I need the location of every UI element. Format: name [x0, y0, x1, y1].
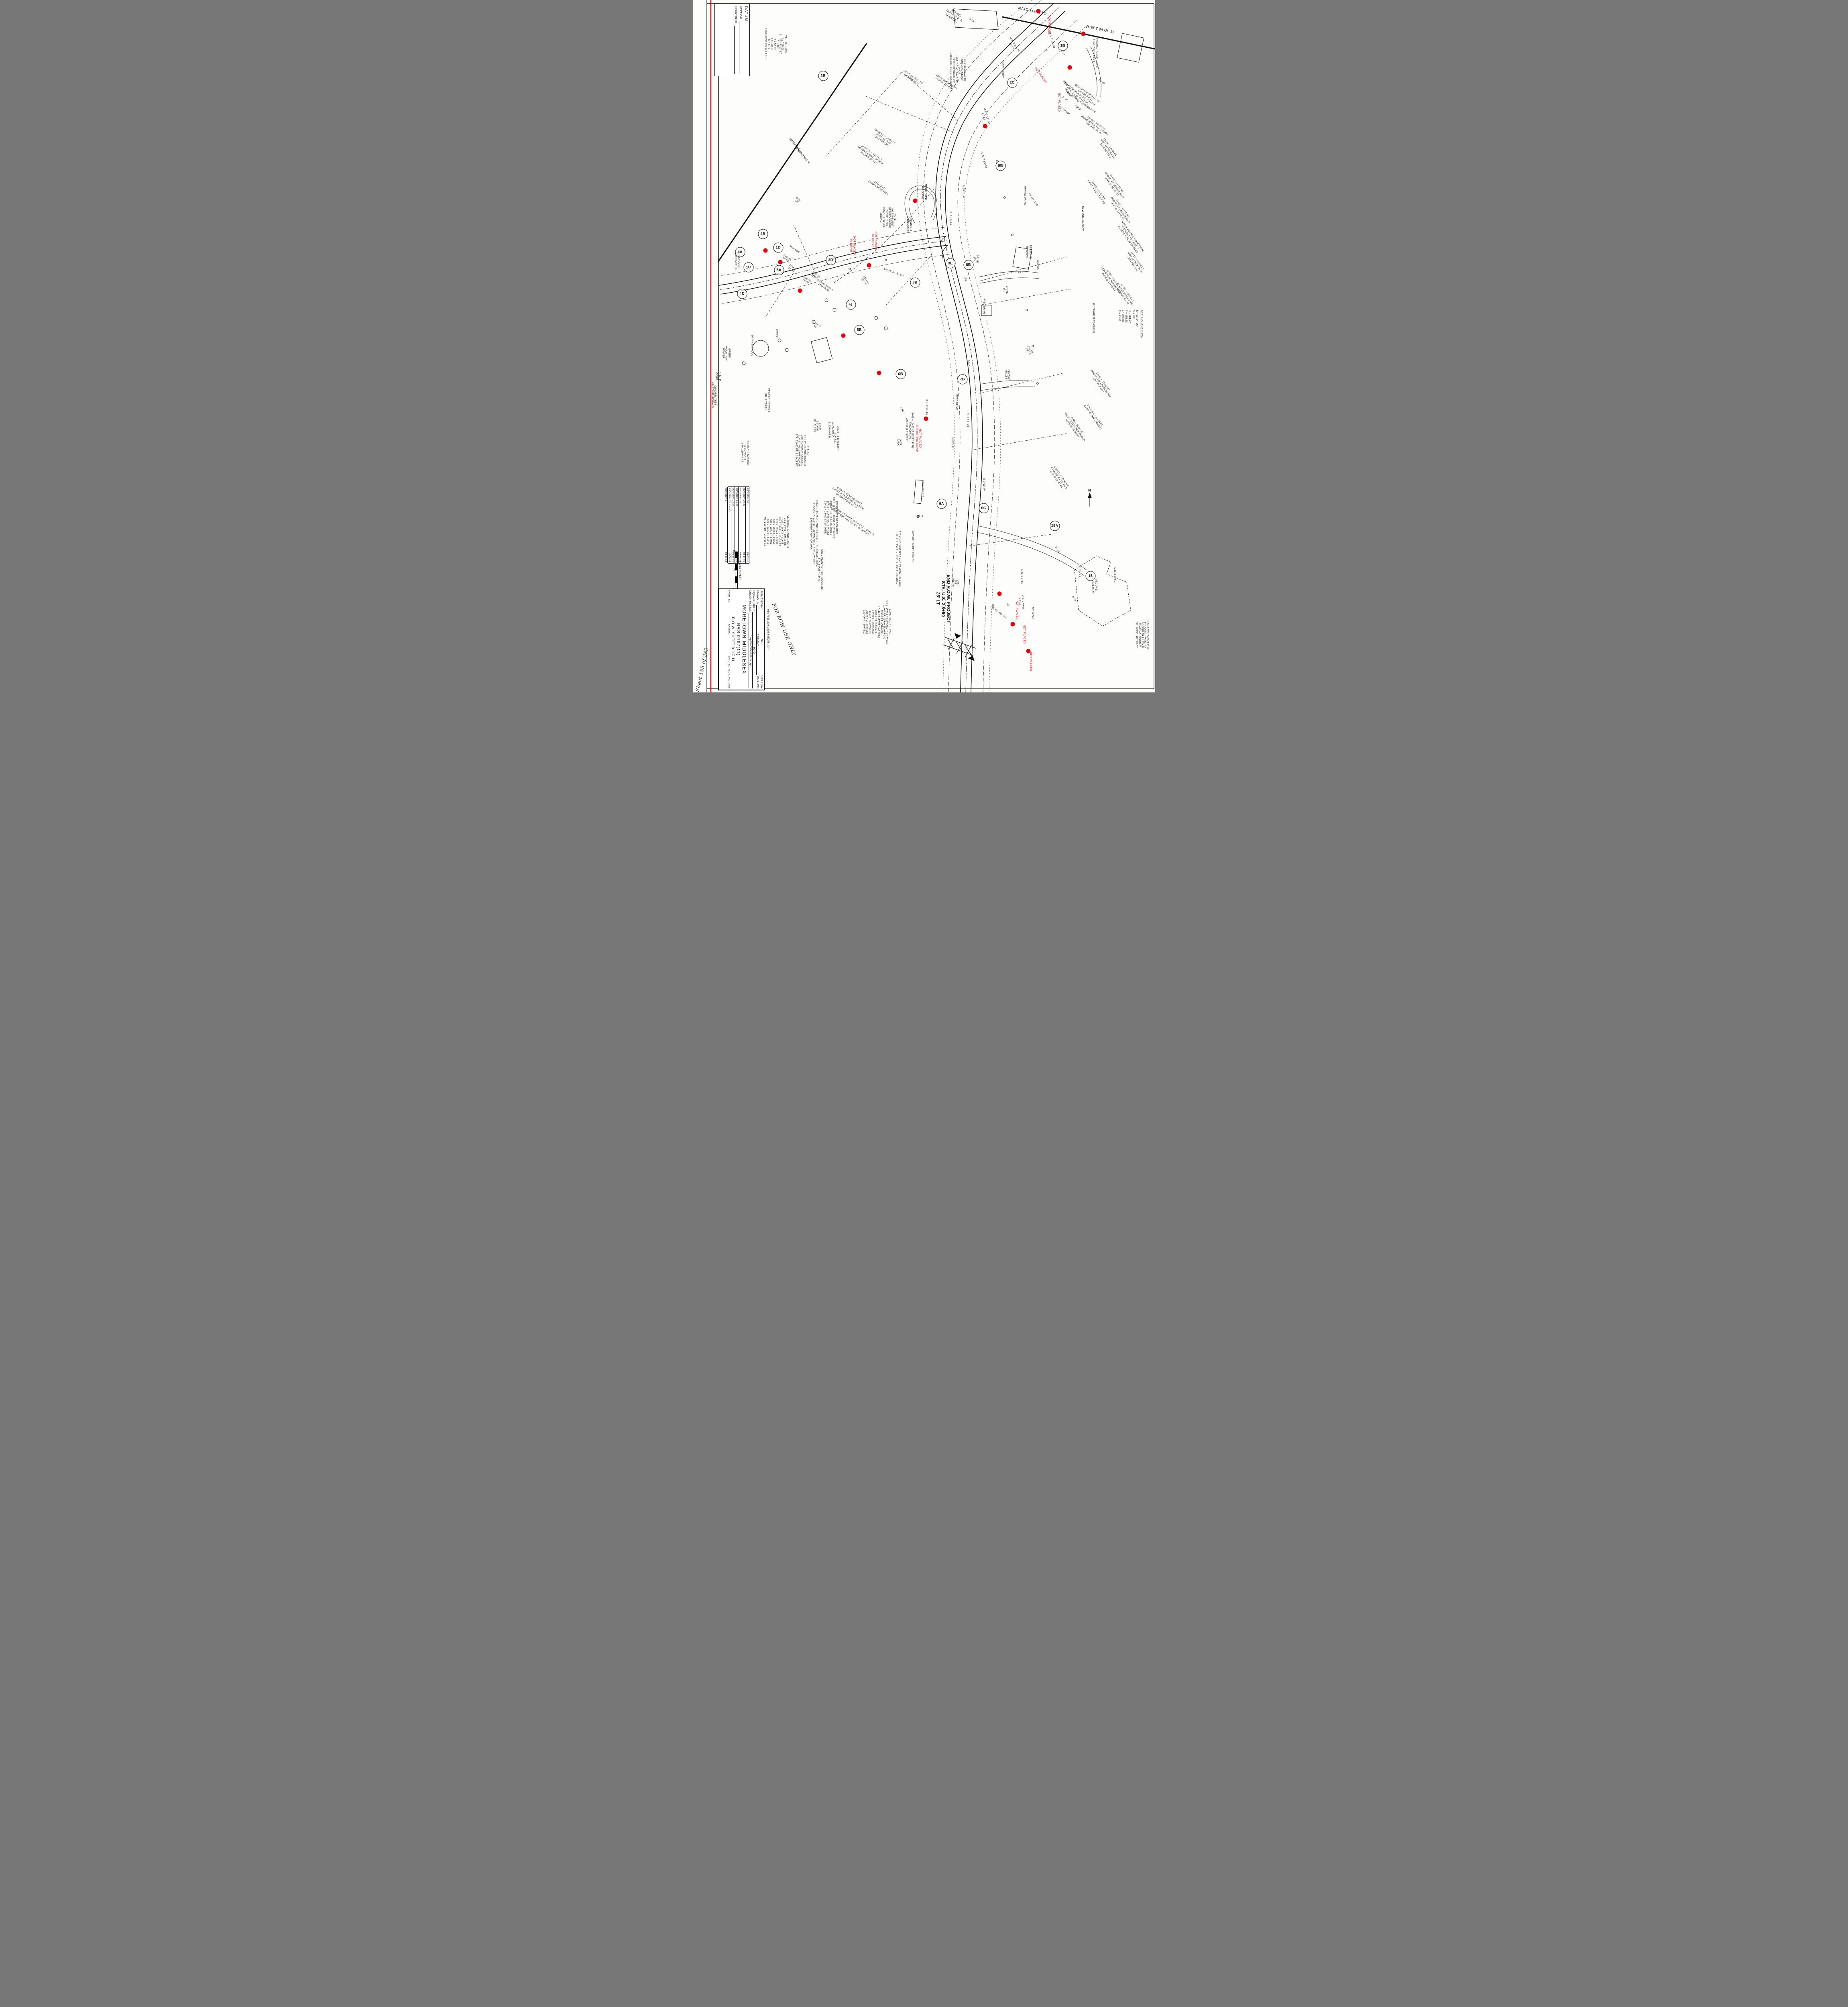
property-lines: [765, 72, 1071, 546]
plan-annotation: GUY: [991, 604, 993, 610]
plan-annotation: PVED DRIVE: [955, 395, 957, 410]
plan-annotation: N: [1088, 489, 1091, 493]
plan-annotation: PEARCE, TERRY L., SR. & TERRI: [764, 388, 770, 414]
datum-vertical-label: VERTICAL: [739, 6, 742, 20]
design-file-label: DESIGN FILE NO.: [749, 590, 751, 612]
parcel-circle-2B: 2B: [818, 71, 828, 81]
plan-annotation: SHRUB: [775, 329, 778, 338]
curve-line: L = 346.00: [1120, 310, 1124, 370]
curve-line: T = 185.89: [1124, 310, 1128, 370]
monument-red-dot: [997, 592, 1001, 596]
north-arrow: [1088, 493, 1091, 507]
plan-annotation: GAS TANK: [896, 439, 902, 446]
parcel-circle-1B: 1B: [1058, 41, 1068, 51]
plan-annotation: NOTE: NO PAVEMENT NEEDED WHERE THERE IS …: [879, 207, 896, 228]
revision-label: REVISION 12,15A,4B: [728, 488, 731, 511]
revision-label: REVISION 29,30: [743, 488, 745, 506]
plan-annotation: S 9°12' W: [982, 478, 985, 491]
parcel-circle-7B: 7B: [957, 375, 967, 385]
monument-red-dot: [1067, 65, 1072, 70]
plan-annotation: GREEN MOUNTAIN POWER: [721, 346, 731, 360]
monument-red-dot: [798, 289, 802, 293]
parcel-circle-1C: 1C: [743, 263, 753, 273]
plan-annotation: DUPORT: [1036, 261, 1039, 272]
plan-annotation: RELOCATE MAILBOX & SUPPORT STA. 216+44 R…: [740, 440, 749, 466]
curve-line: D = 15°: [1131, 310, 1135, 370]
plan-annotation: CUL., DIT., DR. (P): [950, 578, 959, 587]
curve-values: Δ = 51°54'-00"D = 15°R = 381.97T = 185.8…: [1117, 310, 1138, 370]
plan-annotation: DRIVE (T): [1002, 286, 1007, 294]
parcel-circle-4A: 4A: [735, 247, 745, 257]
revision-label: REVISION 9: [725, 488, 727, 501]
bridge-symbol: [943, 633, 976, 661]
red-note: NOT PLACED: [1047, 15, 1050, 34]
plan-annotation: 90° TANGENT TO CURVE: [1091, 303, 1094, 333]
monument-red-dot: [778, 260, 782, 265]
parcel-circle-9B: 9B: [995, 161, 1005, 171]
revision-row: REVISION 29,3003-17-95: [742, 487, 745, 563]
plan-annotation: U.S. 2 12+16: [948, 208, 952, 225]
red-note: NOT PLACED: [1028, 652, 1032, 671]
row-plan-sheet: DATUM VERTICAL HORIZONTAL RTE 2 CURVE DA…: [693, 0, 1155, 692]
plan-annotation: TRAVERS, ROBERT W. & ELIA, KIMBERLY L.: [1092, 35, 1098, 67]
design-file-value: /prop/84e058/re058zzz.dgn: [749, 613, 752, 688]
plan-annotation: U.S. 2 PI 11+13.89 = 11+48.11: [833, 426, 839, 451]
parcel-circle-4D: 4D: [737, 289, 747, 299]
scale-tick-0: 0: [732, 550, 735, 552]
parcel-circle-4B: 4B: [758, 229, 768, 239]
drives: [834, 47, 1101, 576]
parcel-circle-5A: 5A: [774, 265, 784, 275]
parm-file-label: PARM FILE: [728, 590, 730, 603]
plan-annotation: CONSTRUCT GRASS AREA US 2 10+11 ~ 10+36 …: [823, 497, 837, 538]
revision-date: 03-17-95: [743, 552, 745, 562]
curve-line: E = 42.83: [1117, 310, 1120, 370]
datum-box: DATUM VERTICAL HORIZONTAL: [714, 4, 750, 76]
monument-red-dot: [763, 248, 767, 253]
datum-horizontal-label: HORIZONTAL: [734, 6, 737, 24]
monument-red-dot: [867, 263, 871, 268]
parcel-circle-15A: 15A: [1050, 521, 1060, 531]
red-note: NOT PLACED IN DRIVE: [870, 231, 877, 250]
plan-annotation: U.S. 2 9+00 25' LT.: [1018, 594, 1024, 609]
red-note: NOT PLACED IN DRIVE: [849, 236, 855, 255]
parcel-circle-8B: 8B: [963, 260, 973, 270]
plan-annotation: HO TRAILER: [921, 480, 924, 497]
plan-annotation: 9+69 ~ 11+25 LT. EXIST. PIPE REMOVED (T)…: [905, 413, 913, 448]
plan-annotation: U.S. 2 ℄: [1078, 568, 1081, 578]
plan-annotation: 216+84 END PROJ. BRS 0167(11) END ROADWA…: [794, 434, 808, 467]
plan-annotation: DRIVE (T): [951, 438, 954, 450]
surveyed-date: DATE 12/84: [760, 675, 763, 688]
project-towns: MORETOWN-MIDDLESEX: [741, 589, 747, 690]
monument-red-dot: [1081, 32, 1085, 36]
plan-annotation: DRIVE (T): [972, 255, 978, 263]
plan-annotation: MIDDLESEX GASOLINE: [921, 184, 927, 200]
plan-annotation: U.S. 2 10+89: [925, 399, 928, 415]
parcel-circle-2C: 2C: [1007, 78, 1017, 88]
plan-annotation: WELL: [917, 515, 924, 518]
red-note: NOT PLACED IN EXISTING DRIVE: [914, 424, 921, 452]
revision-date: 09-07-95: [746, 552, 749, 562]
plan-annotation: U.S. 2 APPROACH 8+50 BIT. CONC. PAVE. TO…: [1135, 621, 1149, 649]
plan-annotation: PERSONS, BRENDA: [1026, 245, 1032, 259]
parcel-circle-1D: 1D: [773, 243, 783, 253]
plan-annotation: GRAVEL DRIVE: [1001, 60, 1003, 79]
parcel-circle-3B: 3B: [910, 278, 920, 288]
red-note: NOT PLACED: [1022, 625, 1025, 643]
plan-annotation: BIT. CONC. GUTTERS AND TRAFFIC ISLANDS M…: [894, 531, 900, 586]
monument-red-dot: [1026, 649, 1030, 653]
row-sheet-number: R.O.W. SHEET 9 OF 11: [731, 589, 735, 690]
plan-annotation: NEWTON, GENA W.: [1081, 206, 1084, 232]
monument-red-dot: [877, 371, 881, 375]
plan-annotation: VERTICAL GRANITE CURB US 2 9+43 ~ 10+17 …: [763, 515, 789, 548]
parcel-circle-15: 15: [1085, 571, 1095, 581]
scale-label: SCALE IN FEET: [739, 548, 741, 593]
plan-annotation: GRANITE SLOPE EDGING: [911, 531, 914, 563]
squad-leader-label: SQUAD LEADER: [752, 590, 755, 611]
scale-bar-graphic: [735, 552, 738, 589]
plan-annotation: END R.O.W. PROJECT STA. U.S. 2 8+50 25' …: [935, 574, 950, 623]
parcel-circle-3E: 3E: [945, 259, 955, 269]
revision-label: REVISION 34: [746, 488, 749, 503]
drawn-by-value: VEILLEUX: [756, 605, 759, 675]
parcel-circle-5B: 5B: [854, 325, 864, 335]
plan-annotation: FLOWER BOXES: [1004, 369, 1009, 380]
date-plotted: DATE PLOTTED 11-MAR-1996: [728, 656, 730, 688]
red-note: NOT PLACED: [1015, 600, 1018, 619]
parcel-circle-3D: 3D: [826, 255, 836, 265]
title-block: SURVEYED BY NYE DATE 12/84 DRAWN BY VEIL…: [718, 588, 765, 690]
surveyed-by-value: NYE: [760, 610, 763, 673]
plan-annotation: END REMOVAL OF PORTLAND CEMENT 14+25 BIT…: [948, 53, 965, 88]
plan-annotation: VT. RTE. 100 B CURVE #5 Δ = 36°49'-15" L…: [764, 28, 787, 60]
plan-annotation: COLD PLANING ~ BIT. PAVEMENT STA. 14+25 …: [817, 550, 822, 591]
monument-red-dot: [913, 199, 917, 203]
plan-annotation: DENOTES TREE OR STUMP REMOVAL: [710, 382, 716, 409]
drawn-date: DATE 3/85: [756, 676, 759, 688]
plan-annotation: SWIMMING POOL: [750, 334, 753, 356]
parcel-circle-½: ½: [846, 300, 856, 310]
monument-red-dot: [924, 417, 928, 421]
revision-row: REVISION 3409-07-95: [745, 487, 749, 563]
scale-tick-20: 20: [732, 568, 735, 571]
plan-annotation: 108': [963, 277, 966, 281]
rte2-curve-data: RTE 2 CURVE DATA Δ = 51°54'-00"D = 15°R …: [1103, 310, 1143, 370]
plan-annotation: 01G7011 200 L805 84E058 JDP: [766, 609, 769, 649]
plan-annotation: N 69°41' W: [961, 185, 964, 199]
datum-title: DATUM: [744, 6, 748, 74]
plan-annotation: N/F RYAN: [1031, 607, 1034, 620]
curve-line: R = 381.97: [1128, 310, 1131, 370]
curve-line: Δ = 51°54'-00": [1135, 310, 1138, 370]
monument-red-dot: [1010, 622, 1015, 627]
drawn-by-label: DRAWN BY: [756, 590, 759, 604]
parcel-circle-6A: 6A: [936, 499, 946, 509]
surveyed-by-label: SURVEYED BY: [760, 590, 763, 609]
revision-label: REVISION 23,24: [732, 488, 734, 506]
revision-label: REVISION 26,27: [735, 488, 738, 506]
plan-annotation: U.S. 2 9+88: [1020, 569, 1023, 584]
plan-annotation: U.S. 2 10+73: [966, 410, 969, 427]
monument-red-dot: [841, 334, 845, 338]
monument-red-dot: [983, 124, 987, 128]
plan-annotation: TBM #4 18" ASH EL. 511.73': [812, 419, 821, 432]
revision-label: REVISION 28: [739, 488, 741, 503]
squad-leader-value: BOYD: [752, 612, 755, 688]
plan-annotation: U.S. 2 8+50: [1113, 567, 1116, 582]
curve-title: RTE 2 CURVE DATA: [1139, 310, 1143, 370]
plan-annotation: GRAVEL DRIVE: [1023, 186, 1026, 205]
scale-bar: SCALE IN FEET 0 20 40: [724, 548, 741, 593]
project-number: BRS 0167(11): [736, 589, 741, 690]
parm-file-value: re058l2r.J: [728, 624, 730, 634]
plan-annotation: MICHAEL C. & JOANNA N.: [828, 421, 834, 439]
plan-annotation: INSTALL & MAINTAIN (P): [906, 217, 911, 233]
parcel-circle-6B: 6B: [896, 369, 906, 379]
plan-annotation: SIGN: [967, 360, 970, 366]
plan-annotation: G. M. P. CORP.: [715, 372, 721, 382]
parcel-circle-6C: 6C: [979, 503, 989, 513]
plan-annotation: GRADE, TOPSOIL AND SEED EXISTING GRAVEL …: [809, 500, 818, 567]
monument-red-dot: [1036, 9, 1040, 14]
plan-annotation: PVED DRIVE: [982, 299, 985, 314]
plan-annotation: CONSTRUCT DRIVES US 2 10+53 RT. (PAVED +…: [862, 600, 891, 644]
